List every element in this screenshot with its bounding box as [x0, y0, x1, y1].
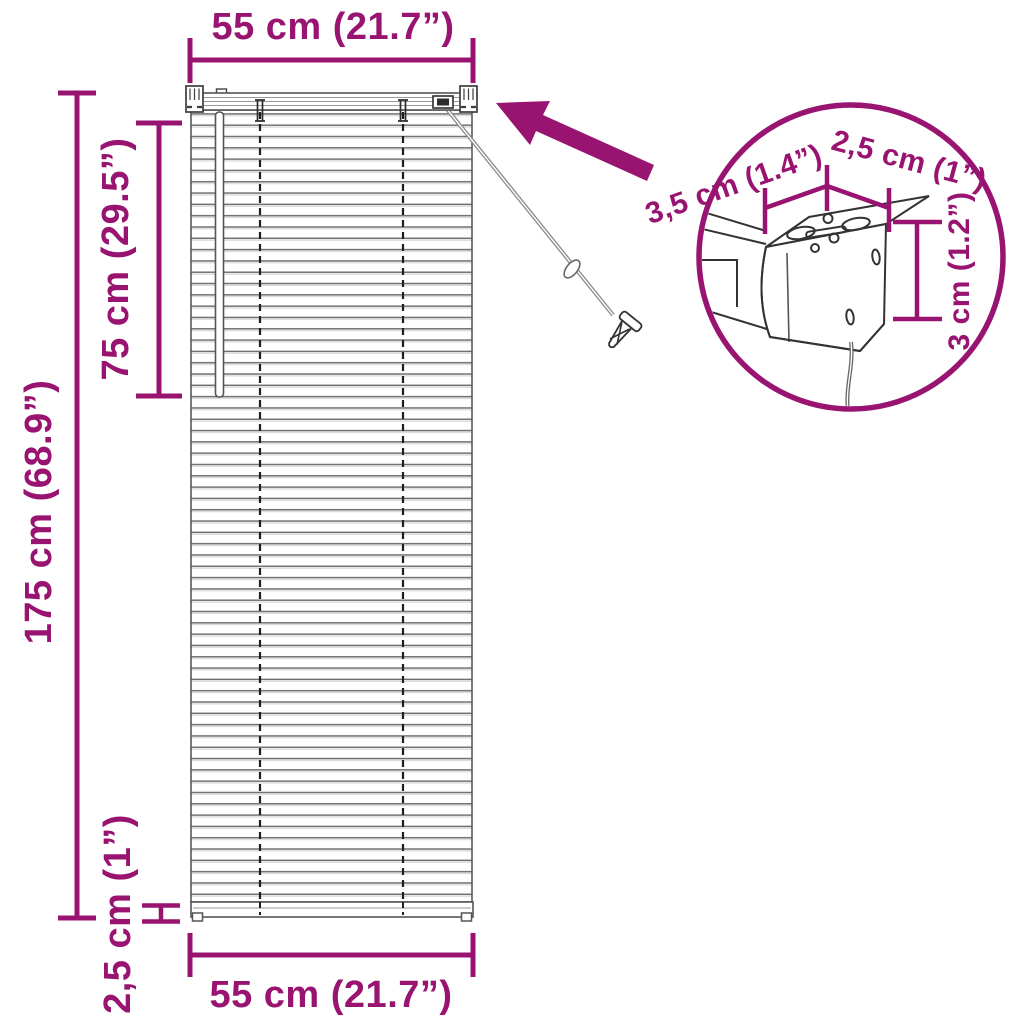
dim-total-height: [58, 93, 96, 918]
lift-cord: [446, 108, 643, 354]
product-dimension-diagram: 55 cm (21.7”) 55 cm (21.7”) 175 cm (68.9…: [0, 0, 1024, 1024]
cord-lock: [433, 96, 453, 108]
headrail-bracket-right: [460, 86, 477, 112]
label-headrail-height: 3 cm (1.2”): [945, 192, 975, 351]
label-bottom-width: 55 cm (21.7”): [209, 976, 452, 1014]
zoom-callout-arrow-icon: [496, 101, 654, 181]
cord-connector: [561, 257, 583, 280]
label-upper-section-height: 75 cm (29.5”): [97, 137, 135, 380]
blind-drawing: [186, 86, 643, 921]
label-total-height: 175 cm (68.9”): [20, 380, 58, 645]
blind-slats: [191, 110, 472, 902]
dim-bottom-rail-height: [142, 906, 180, 922]
dim-bottom-width: [190, 933, 473, 977]
label-bottom-rail-height: 2,5 cm (1”): [99, 814, 137, 1014]
label-top-width: 55 cm (21.7”): [211, 8, 454, 46]
blind-bottom-rail: [191, 902, 473, 921]
tilt-wand: [216, 112, 224, 397]
cord-tassel: [601, 310, 643, 354]
dim-upper-section-height: [136, 123, 182, 396]
headrail-bracket-left: [186, 86, 203, 112]
